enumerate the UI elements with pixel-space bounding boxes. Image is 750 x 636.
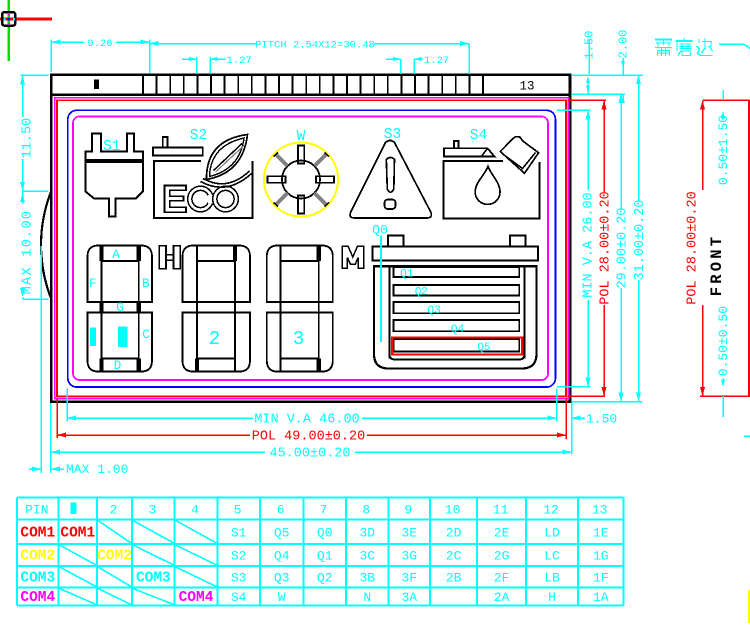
svg-text:10: 10 — [445, 503, 461, 518]
svg-text:S2: S2 — [231, 549, 247, 564]
svg-text:9.26: 9.26 — [87, 38, 112, 50]
svg-text:2: 2 — [110, 503, 118, 518]
svg-text:2B: 2B — [446, 570, 462, 585]
svg-text:1.27: 1.27 — [227, 55, 252, 67]
svg-text:MIN V.A 46.00: MIN V.A 46.00 — [254, 413, 359, 428]
svg-text:S1: S1 — [103, 139, 120, 155]
svg-text:Q0: Q0 — [317, 525, 333, 540]
svg-text:LC: LC — [544, 549, 560, 564]
svg-text:A: A — [112, 248, 120, 262]
svg-text:6: 6 — [277, 503, 285, 518]
svg-text:7: 7 — [320, 503, 328, 518]
svg-text:2E: 2E — [494, 525, 510, 540]
svg-text:Q0: Q0 — [372, 223, 388, 238]
svg-text:LB: LB — [544, 570, 560, 585]
svg-text:PIN: PIN — [25, 503, 48, 518]
svg-text:1F: 1F — [593, 570, 609, 585]
svg-text:Q3: Q3 — [427, 305, 440, 317]
svg-text:2D: 2D — [446, 525, 462, 540]
svg-text:13: 13 — [519, 80, 534, 94]
svg-text:W: W — [297, 129, 306, 145]
svg-text:MAX 1.00: MAX 1.00 — [66, 462, 128, 477]
svg-text:3: 3 — [293, 328, 304, 350]
svg-text:2G: 2G — [494, 549, 510, 564]
svg-text:S2: S2 — [190, 128, 207, 144]
svg-text:S1: S1 — [231, 525, 247, 540]
svg-text:LD: LD — [544, 525, 560, 540]
svg-text:8: 8 — [362, 503, 370, 518]
svg-text:3: 3 — [148, 503, 156, 518]
svg-text:3B: 3B — [359, 570, 375, 585]
svg-text:3E: 3E — [401, 525, 417, 540]
svg-text:1E: 1E — [593, 525, 609, 540]
svg-text:29.00±0.20: 29.00±0.20 — [616, 207, 631, 288]
svg-text:-0.50±0.50: -0.50±0.50 — [716, 306, 731, 384]
svg-text:Q4: Q4 — [451, 324, 465, 336]
svg-text:COM1: COM1 — [60, 525, 95, 541]
svg-text:MIN V.A 26.00: MIN V.A 26.00 — [582, 192, 597, 297]
svg-text:1.27: 1.27 — [424, 55, 449, 67]
svg-text:9: 9 — [404, 503, 412, 518]
svg-text:2C: 2C — [446, 549, 462, 564]
svg-text:FRONT: FRONT — [708, 234, 726, 297]
svg-text:3D: 3D — [359, 525, 375, 540]
svg-text:1.50: 1.50 — [583, 31, 597, 60]
svg-text:2F: 2F — [494, 570, 510, 585]
svg-text:13: 13 — [592, 503, 608, 518]
svg-text:COM2: COM2 — [20, 549, 55, 565]
svg-text:45.00±0.20: 45.00±0.20 — [269, 447, 350, 462]
svg-text:POL 28.00±0.20: POL 28.00±0.20 — [599, 191, 614, 304]
svg-text:31.00±0.20: 31.00±0.20 — [633, 199, 648, 280]
svg-text:F: F — [89, 277, 97, 291]
svg-text:Q2: Q2 — [415, 287, 428, 299]
svg-text:S3: S3 — [384, 127, 401, 143]
svg-text:2.00: 2.00 — [617, 30, 631, 59]
svg-text:COM1: COM1 — [20, 525, 55, 541]
svg-text:POL 28.00±0.20: POL 28.00±0.20 — [686, 191, 701, 304]
svg-text:B: B — [142, 277, 150, 291]
svg-text:5: 5 — [234, 503, 242, 518]
svg-text:COM3: COM3 — [136, 570, 171, 586]
svg-text:4: 4 — [191, 503, 199, 518]
svg-text:POL 49.00±0.20: POL 49.00±0.20 — [252, 430, 365, 445]
svg-text:3C: 3C — [359, 549, 375, 564]
svg-text:PITCH 2.54X12=30.48: PITCH 2.54X12=30.48 — [255, 40, 375, 52]
svg-text:Q3: Q3 — [274, 570, 290, 585]
svg-text:COM2: COM2 — [97, 549, 132, 565]
svg-text:2: 2 — [209, 328, 220, 350]
svg-text:C: C — [142, 328, 150, 342]
svg-text:Q5: Q5 — [477, 342, 490, 354]
svg-text:3G: 3G — [401, 549, 417, 564]
svg-text:Q5: Q5 — [274, 525, 290, 540]
svg-text:0.50±1.50: 0.50±1.50 — [716, 115, 731, 185]
svg-text:Q2: Q2 — [317, 570, 333, 585]
svg-text:S4: S4 — [470, 128, 487, 144]
svg-text:3A: 3A — [401, 590, 417, 605]
svg-text:G: G — [116, 301, 124, 315]
svg-text:H: H — [548, 590, 556, 605]
svg-text:Q1: Q1 — [317, 549, 333, 564]
svg-text:11.50: 11.50 — [21, 118, 36, 159]
svg-text:S4: S4 — [231, 590, 247, 605]
svg-text:COM4: COM4 — [20, 590, 55, 606]
svg-text:3F: 3F — [401, 570, 417, 585]
svg-text:MAX 10.00: MAX 10.00 — [21, 210, 36, 295]
svg-text:Q1: Q1 — [400, 269, 414, 281]
svg-text:COM3: COM3 — [20, 570, 55, 586]
svg-text:1A: 1A — [593, 590, 609, 605]
svg-text:S3: S3 — [231, 570, 247, 585]
svg-text:N: N — [363, 590, 371, 605]
svg-text:1.50: 1.50 — [586, 412, 617, 427]
svg-text:D: D — [114, 359, 122, 373]
svg-text:Q4: Q4 — [274, 549, 290, 564]
svg-text:COM4: COM4 — [179, 590, 214, 606]
svg-text:11: 11 — [493, 503, 509, 518]
svg-text:W: W — [278, 590, 286, 605]
svg-text:2A: 2A — [494, 590, 510, 605]
svg-text:12: 12 — [543, 503, 559, 518]
svg-text:1G: 1G — [593, 549, 609, 564]
